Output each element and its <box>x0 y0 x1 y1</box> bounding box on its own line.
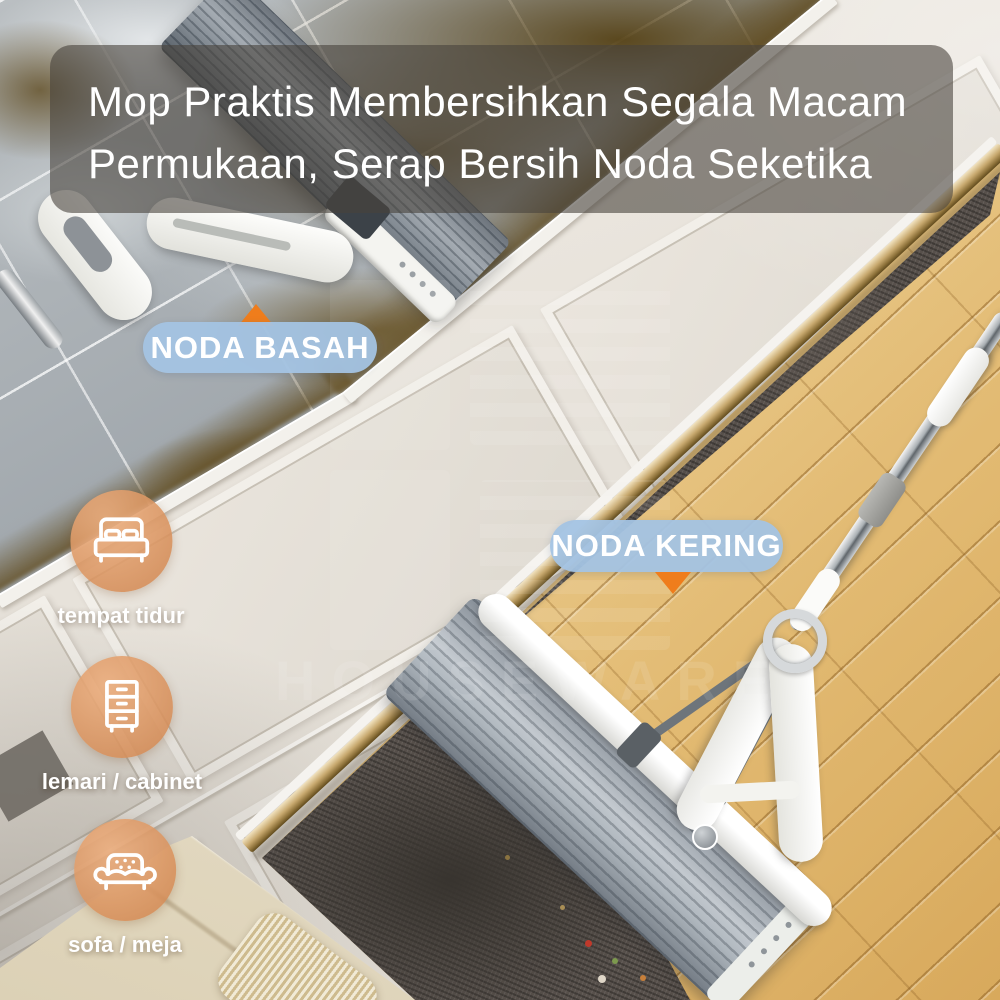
bed-icon <box>87 507 155 575</box>
header-line-1: Mop Praktis Membersihkan Segala Macam <box>88 78 907 126</box>
feature-circle <box>71 656 173 758</box>
feature-label: lemari / cabinet <box>42 769 202 795</box>
arrow-down-icon <box>655 572 691 594</box>
header-banner: Mop Praktis Membersihkan Segala Macam Pe… <box>50 45 953 213</box>
feature-cabinet: lemari / cabinet <box>42 656 202 795</box>
watermark-text: HOUSEWARE <box>275 648 786 713</box>
watermark-glyph <box>330 470 450 650</box>
dirt-speck <box>612 958 618 964</box>
feature-circle <box>74 819 176 921</box>
dirt-speck <box>598 975 606 983</box>
dirt-speck <box>585 940 592 947</box>
mop-hinge-pin <box>692 824 718 850</box>
feature-label: tempat tidur <box>57 603 184 629</box>
dirt-speck <box>560 905 565 910</box>
feature-circle <box>70 490 172 592</box>
mop-arm-slot <box>172 218 291 252</box>
dry-stain-badge: NODA KERING <box>550 520 783 572</box>
watermark-glyph <box>470 285 670 445</box>
dirt-speck <box>640 975 646 981</box>
dirt-speck <box>505 855 510 860</box>
cabinet-icon <box>88 673 156 741</box>
promo-image: HOUSEWARE Mop Praktis Membersihkan Segal… <box>0 0 1000 1000</box>
feature-label: sofa / meja <box>68 932 182 958</box>
feature-bed: tempat tidur <box>57 490 184 629</box>
feature-sofa: sofa / meja <box>68 819 182 958</box>
sofa-icon <box>91 836 159 904</box>
wet-stain-badge: NODA BASAH <box>143 322 377 373</box>
header-line-2: Permukaan, Serap Bersih Noda Seketika <box>88 140 872 188</box>
